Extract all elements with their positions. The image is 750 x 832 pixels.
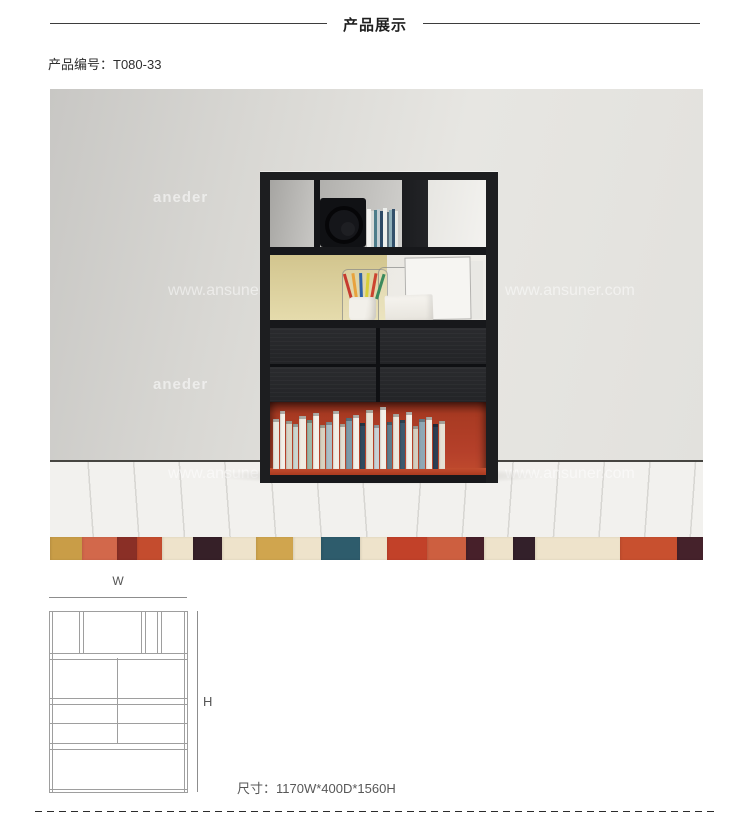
book-row <box>273 405 446 469</box>
open-compartment-right <box>428 180 486 247</box>
rug-stripe-strip <box>222 537 256 560</box>
book-strip <box>439 421 445 469</box>
pencil-strip <box>351 273 358 299</box>
size-text: 尺寸：1170W*400D*1560H <box>237 778 396 797</box>
bottom-dashed-separator <box>35 811 715 812</box>
diagram-shelf-line <box>50 743 187 750</box>
height-dimension-line <box>197 611 198 792</box>
striped-rug <box>50 537 703 560</box>
watermark-url: www.ansuner.com <box>505 282 635 300</box>
speaker-compartment <box>320 180 402 247</box>
book-strip <box>353 415 359 469</box>
pencil-strip <box>365 273 370 299</box>
shelf-front-diagram <box>49 611 188 793</box>
drawer <box>270 328 376 364</box>
book-strip <box>286 421 292 469</box>
book-strip <box>387 422 392 469</box>
shelf-top-section <box>270 180 486 247</box>
rug-stripe-strip <box>82 537 117 560</box>
book-strip <box>340 424 345 469</box>
open-compartment-left <box>270 180 314 247</box>
rug-stripe-strip <box>620 537 677 560</box>
book-strip <box>346 418 352 469</box>
rug-stripe-strip <box>162 537 193 560</box>
red-book-compartment <box>270 402 486 475</box>
book-strip <box>400 420 405 469</box>
book-strip <box>307 420 312 469</box>
book-strip <box>426 417 432 469</box>
display-shelf-section <box>270 255 486 320</box>
rug-stripe-strip <box>484 537 513 560</box>
height-dimension-label: H <box>203 694 212 709</box>
black-panel-block <box>402 180 428 247</box>
watermark-brand: aneder <box>153 189 208 206</box>
width-dimension-line <box>49 597 187 598</box>
rug-stripe-strip <box>293 537 321 560</box>
book-strip <box>313 413 319 469</box>
rug-stripe-strip <box>535 537 620 560</box>
header-rule-right <box>423 23 700 24</box>
diagram-inner-bottom-line <box>50 789 187 790</box>
book-strip <box>360 423 365 469</box>
product-photo[interactable]: aneder aneder aneder aneder www.ansuner.… <box>50 89 703 560</box>
book-strip <box>374 425 379 469</box>
book-strip <box>333 411 339 469</box>
speaker-ring <box>325 206 363 244</box>
product-display-page: 产品展示 产品编号：T080-33 aneder aneder aneder a… <box>0 0 750 832</box>
red-compartment-floor <box>270 468 486 475</box>
book-strip <box>406 412 412 469</box>
rug-stripe-strip <box>466 537 484 560</box>
rug-stripe-strip <box>117 537 137 560</box>
diagram-shelf-line <box>50 653 187 660</box>
shelf-bar <box>270 475 486 483</box>
width-dimension-label: W <box>49 574 187 588</box>
diagram-shelf-line <box>50 698 187 705</box>
book-strip <box>413 426 418 469</box>
page-title: 产品展示 <box>0 14 750 35</box>
pencil-bunch <box>349 271 379 299</box>
rug-stripe-strip <box>321 537 360 560</box>
drawer <box>270 367 376 402</box>
rug-stripe-strip <box>387 537 427 560</box>
book-strip <box>280 411 285 469</box>
shelf-bar <box>270 247 486 255</box>
book-strip <box>299 416 306 469</box>
rug-stripe-strip <box>677 537 703 560</box>
diagram-top-divider <box>79 612 84 653</box>
pencil-strip <box>359 273 363 299</box>
book-strip <box>393 414 399 469</box>
drawer <box>380 367 486 402</box>
book-strip <box>380 407 386 469</box>
diagram-center-divider <box>117 658 118 743</box>
rug-stripe-strip <box>50 537 82 560</box>
rug-stripe-strip <box>360 537 387 560</box>
cd-strip <box>395 211 398 247</box>
bookshelf <box>260 172 498 483</box>
rug-stripe-strip <box>193 537 222 560</box>
marble-box <box>385 294 434 320</box>
book-strip <box>419 419 425 469</box>
book-strip <box>326 422 332 469</box>
cd-row <box>367 207 400 247</box>
diagram-drawer-line <box>50 723 187 724</box>
book-strip <box>273 419 279 469</box>
watermark-brand: aneder <box>153 376 208 393</box>
speaker-box <box>320 198 366 247</box>
book-strip <box>366 410 373 469</box>
shelf-bar <box>270 320 486 328</box>
diagram-top-divider <box>141 612 146 653</box>
rug-stripe-strip <box>427 537 466 560</box>
pencil-cup <box>349 297 376 320</box>
book-strip <box>433 424 438 469</box>
drawer-section <box>270 328 486 402</box>
drawer <box>380 328 486 364</box>
speaker-cone <box>341 222 355 236</box>
book-strip <box>293 424 298 469</box>
product-code: 产品编号：T080-33 <box>48 54 161 73</box>
diagram-top-divider <box>157 612 162 653</box>
rug-stripe-strip <box>256 537 293 560</box>
book-strip <box>320 425 325 469</box>
rug-stripe-strip <box>513 537 535 560</box>
rug-stripe-strip <box>137 537 162 560</box>
